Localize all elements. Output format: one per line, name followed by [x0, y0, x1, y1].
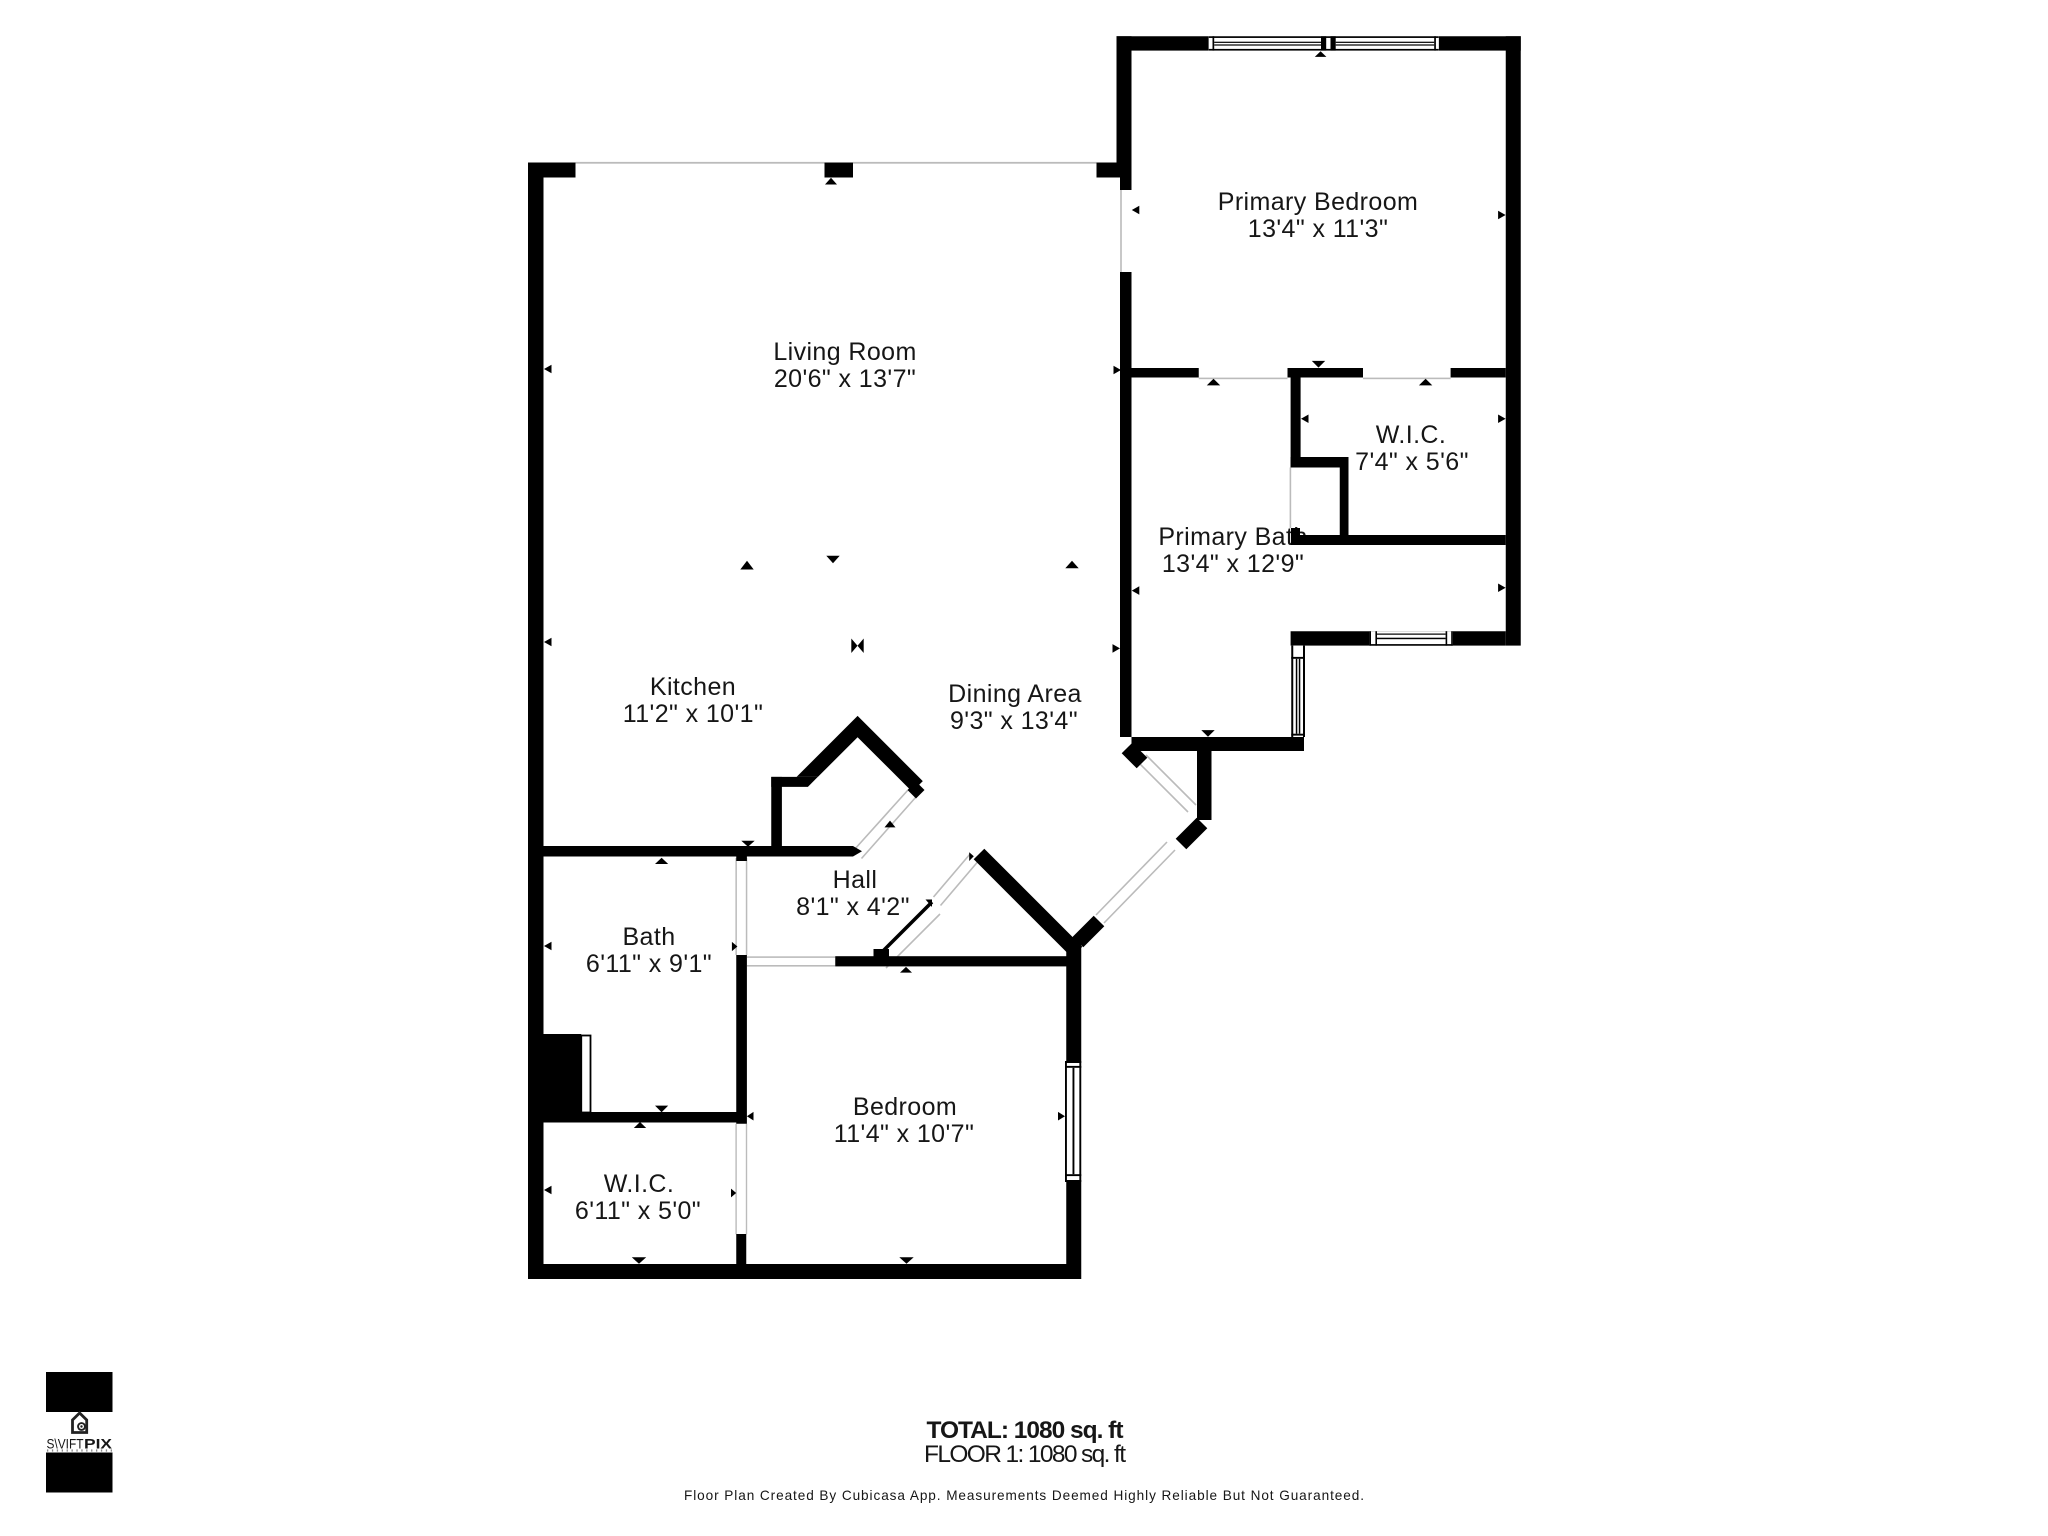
- svg-text:6'11" x 9'1": 6'11" x 9'1": [586, 950, 712, 978]
- svg-text:Primary Bedroom: Primary Bedroom: [1218, 188, 1419, 216]
- svg-text:W.I.C.: W.I.C.: [1376, 421, 1446, 449]
- svg-text:W.I.C.: W.I.C.: [604, 1170, 674, 1198]
- svg-text:7'4" x 5'6": 7'4" x 5'6": [1355, 448, 1469, 476]
- svg-text:20'6" x 13'7": 20'6" x 13'7": [774, 365, 916, 393]
- svg-text:TOTAL: 1080 sq. ft: TOTAL: 1080 sq. ft: [927, 1417, 1124, 1444]
- svg-text:Floor Plan Created By Cubicasa: Floor Plan Created By Cubicasa App. Meas…: [684, 1488, 1364, 1503]
- svg-text:Primary Bath: Primary Bath: [1158, 523, 1307, 551]
- svg-text:Hall: Hall: [833, 866, 878, 894]
- svg-text:Kitchen: Kitchen: [650, 673, 736, 701]
- svg-text:FLOOR 1: 1080 sq. ft: FLOOR 1: 1080 sq. ft: [924, 1441, 1126, 1468]
- svg-text:Living Room: Living Room: [773, 338, 916, 366]
- svg-text:11'4" x 10'7": 11'4" x 10'7": [834, 1120, 974, 1148]
- svg-text:13'4" x 12'9": 13'4" x 12'9": [1162, 550, 1304, 578]
- svg-text:11'2" x 10'1": 11'2" x 10'1": [623, 700, 763, 728]
- svg-text:13'4" x 11'3": 13'4" x 11'3": [1248, 215, 1388, 243]
- svg-text:6'11" x 5'0": 6'11" x 5'0": [575, 1197, 701, 1225]
- svg-text:Bedroom: Bedroom: [853, 1093, 957, 1121]
- svg-text:Dining Area: Dining Area: [948, 680, 1082, 708]
- svg-text:9'3" x 13'4": 9'3" x 13'4": [950, 707, 1078, 735]
- svg-text:8'1" x 4'2": 8'1" x 4'2": [796, 893, 910, 921]
- svg-text:PIX: PIX: [84, 1436, 113, 1452]
- svg-text:S\VIFT: S\VIFT: [47, 1436, 84, 1452]
- svg-text:Bath: Bath: [622, 923, 675, 951]
